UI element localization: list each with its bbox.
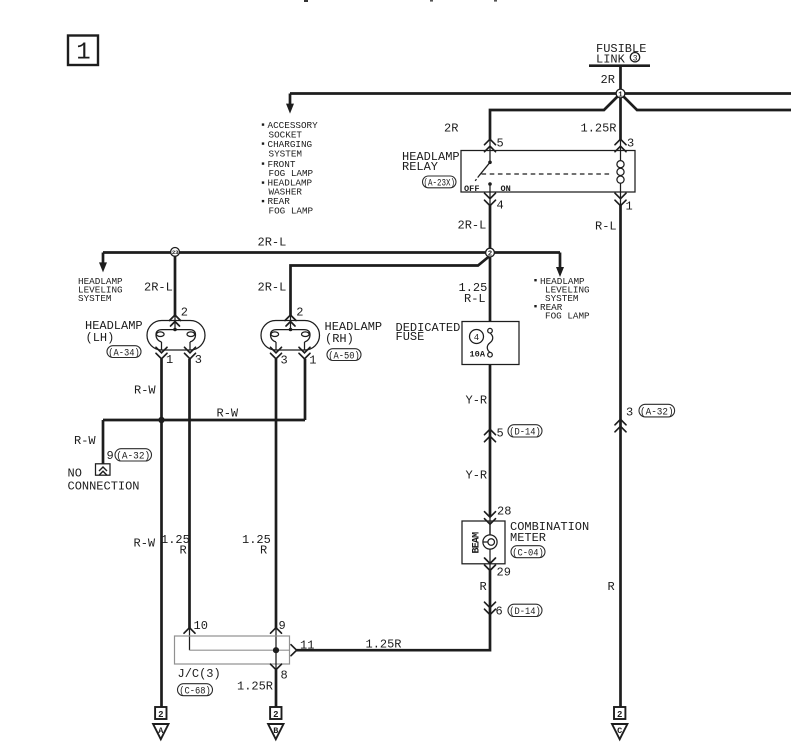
svg-text:3: 3 xyxy=(633,54,638,63)
svg-text:R-W: R-W xyxy=(217,407,239,421)
svg-text:Y-R: Y-R xyxy=(466,394,488,408)
svg-text:(A-34): (A-34) xyxy=(108,347,140,359)
svg-text:LINK: LINK xyxy=(596,52,626,66)
svg-text:23: 23 xyxy=(172,249,179,256)
svg-text:10: 10 xyxy=(194,619,208,633)
svg-text:FOG LAMP: FOG LAMP xyxy=(545,311,590,322)
svg-text:BEAM: BEAM xyxy=(472,532,483,554)
svg-text:B: B xyxy=(273,726,278,736)
svg-text:1.25R: 1.25R xyxy=(237,679,273,693)
svg-text:(A-23X): (A-23X) xyxy=(424,178,456,190)
svg-text:2R-L: 2R-L xyxy=(458,219,487,233)
svg-text:(C-04): (C-04) xyxy=(512,547,544,559)
svg-text:3: 3 xyxy=(195,353,202,367)
svg-text:RELAY: RELAY xyxy=(402,160,438,174)
svg-text:R: R xyxy=(260,544,267,558)
svg-text:6: 6 xyxy=(496,605,503,619)
svg-text:2R-L: 2R-L xyxy=(258,235,287,249)
svg-text:(C-68): (C-68) xyxy=(179,685,211,697)
svg-text:R-L: R-L xyxy=(595,219,617,233)
svg-text:3: 3 xyxy=(627,137,634,151)
svg-text:1: 1 xyxy=(618,91,623,99)
svg-text:2R-L: 2R-L xyxy=(144,281,173,295)
svg-text:(A-32): (A-32) xyxy=(640,406,674,418)
svg-text:Y-R: Y-R xyxy=(466,469,488,483)
svg-text:METER: METER xyxy=(510,531,546,545)
svg-text:2: 2 xyxy=(296,306,303,320)
svg-text:1: 1 xyxy=(626,200,633,214)
svg-text:FUSE: FUSE xyxy=(396,330,425,344)
svg-text:29: 29 xyxy=(497,566,511,580)
svg-text:1.25R: 1.25R xyxy=(581,122,617,136)
svg-text:4: 4 xyxy=(474,333,479,343)
svg-text:10A: 10A xyxy=(470,350,486,360)
svg-text:5: 5 xyxy=(497,426,504,440)
svg-text:R-W: R-W xyxy=(74,434,96,448)
svg-text:2: 2 xyxy=(158,710,163,720)
svg-text:5: 5 xyxy=(497,137,504,151)
svg-text:OFF: OFF xyxy=(464,184,479,194)
svg-text:J/C(3): J/C(3) xyxy=(178,667,221,681)
svg-text:R-L: R-L xyxy=(464,292,486,306)
svg-text:(D-14): (D-14) xyxy=(509,606,541,618)
svg-text:2R-L: 2R-L xyxy=(258,281,287,295)
svg-text:1: 1 xyxy=(166,353,173,367)
svg-text:(A-50): (A-50) xyxy=(328,350,360,362)
svg-text:1: 1 xyxy=(309,353,316,367)
svg-text:R-W: R-W xyxy=(134,384,156,398)
svg-text:2: 2 xyxy=(617,710,622,720)
svg-text:2: 2 xyxy=(273,710,278,720)
svg-text:R: R xyxy=(608,580,615,594)
svg-text:1: 1 xyxy=(76,40,90,67)
svg-text:9: 9 xyxy=(107,449,114,463)
svg-text:SYSTEM: SYSTEM xyxy=(78,293,111,304)
svg-text:(A-32): (A-32) xyxy=(116,451,150,463)
svg-text:3: 3 xyxy=(626,405,633,419)
svg-text:1.25R: 1.25R xyxy=(366,637,402,651)
svg-text:2: 2 xyxy=(181,306,188,320)
svg-text:R-W: R-W xyxy=(134,537,156,551)
svg-text:NO: NO xyxy=(68,467,82,481)
svg-text:SYSTEM: SYSTEM xyxy=(269,148,302,159)
svg-text:8: 8 xyxy=(281,669,288,683)
svg-text:2R: 2R xyxy=(444,122,458,136)
svg-text:ON: ON xyxy=(501,184,511,194)
svg-text:28: 28 xyxy=(497,504,511,518)
svg-text:2: 2 xyxy=(488,251,492,259)
svg-text:R: R xyxy=(180,544,187,558)
svg-text:R: R xyxy=(480,580,487,594)
svg-text:(D-14): (D-14) xyxy=(509,427,541,439)
svg-text:(LH): (LH) xyxy=(86,331,115,345)
svg-text:11: 11 xyxy=(300,639,314,653)
svg-text:CONNECTION: CONNECTION xyxy=(68,480,140,494)
svg-text:2R: 2R xyxy=(601,73,615,87)
svg-text:FOG LAMP: FOG LAMP xyxy=(269,205,314,216)
svg-text:C: C xyxy=(617,726,622,736)
svg-text:3: 3 xyxy=(281,353,288,367)
svg-text:4: 4 xyxy=(497,199,504,213)
svg-text:(RH): (RH) xyxy=(325,332,354,346)
svg-text:9: 9 xyxy=(279,619,286,633)
svg-text:A: A xyxy=(158,726,164,736)
